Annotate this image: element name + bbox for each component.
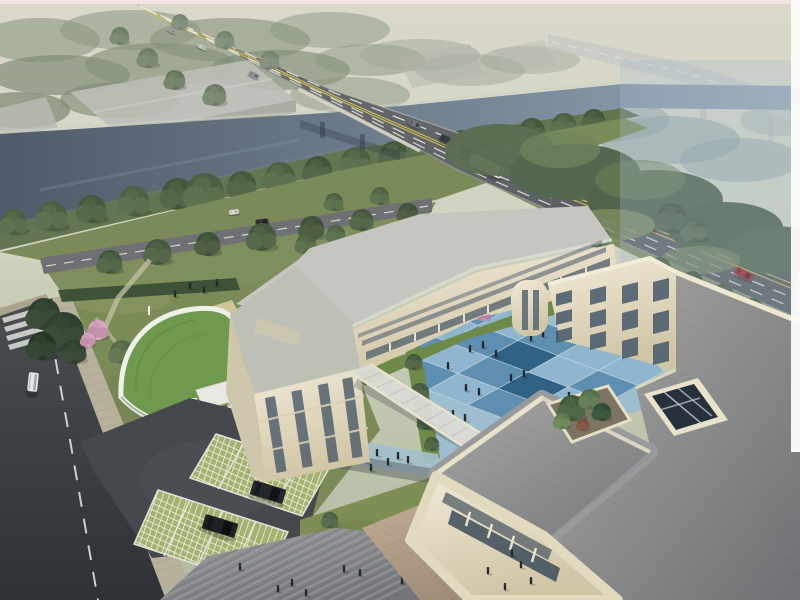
rendering-stage: Aerial architectural rendering of a thre… — [0, 0, 800, 600]
architectural-aerial-rendering — [0, 0, 800, 600]
